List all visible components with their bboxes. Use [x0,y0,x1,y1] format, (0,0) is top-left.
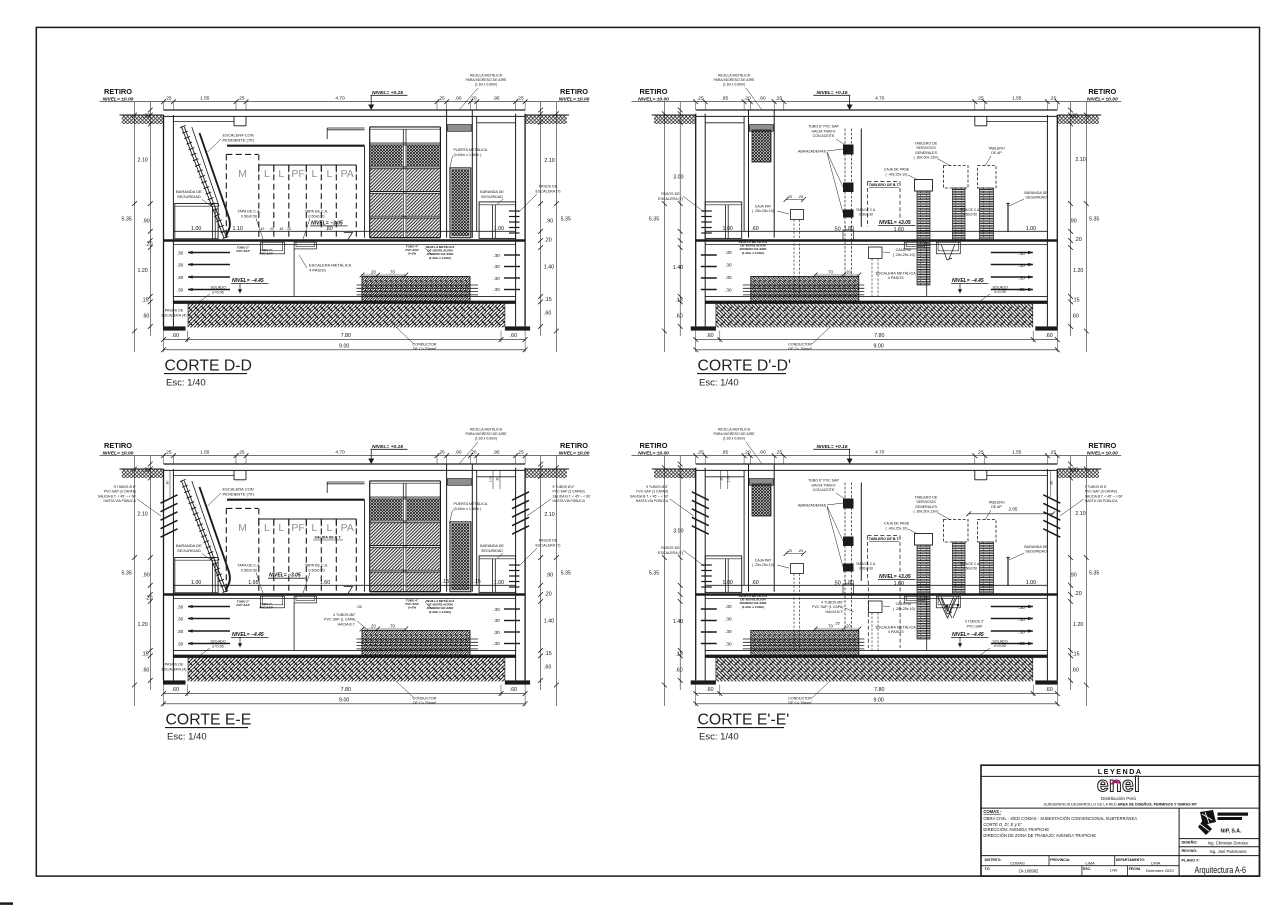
svg-text:1.20: 1.20 [1073,268,1083,274]
svg-text:SALIDA B.T. < 45' ~ < 60': SALIDA B.T. < 45' ~ < 60' [630,494,668,498]
svg-text:PVC SAP (1 CAPA): PVC SAP (1 CAPA) [324,618,355,622]
svg-text:.60: .60 [1071,667,1078,673]
svg-text:Esc: 1/40: Esc: 1/40 [166,377,206,388]
svg-text:(1.20m x 0.60m): (1.20m x 0.60m) [429,610,451,614]
svg-text:REJILLA METÁLICA: REJILLA METÁLICA [718,428,751,432]
svg-text:PF: PF [291,522,304,534]
svg-text:9 TUBOS Ø 6": 9 TUBOS Ø 6" [114,485,137,489]
svg-text:DIRECCIÓN: AVENIDA TRAPICHE: DIRECCIÓN: AVENIDA TRAPICHE [983,827,1049,832]
svg-text:NIVEL= −4.45: NIVEL= −4.45 [952,278,984,284]
svg-text:CONDUCTOR: CONDUCTOR [788,342,812,346]
svg-text:CONDUCTOR: CONDUCTOR [413,342,437,346]
svg-text:(1.20m x 0.60m): (1.20m x 0.60m) [742,251,764,255]
svg-text:.30: .30 [725,629,732,634]
svg-text:.20: .20 [370,623,376,628]
svg-text:.30: .30 [725,275,732,280]
svg-text:.15: .15 [1072,652,1079,658]
svg-text:L: L [264,522,270,534]
svg-text:.30: .30 [493,618,500,623]
svg-text:CAJA DE PASE: CAJA DE PASE [884,168,910,172]
svg-text:1.60: 1.60 [894,581,904,587]
svg-text:.30: .30 [493,264,500,269]
svg-text:SUBGERENCIA DESARROLLO DE LA: SUBGERENCIA DESARROLLO DE LA RED AREA DE… [1044,802,1198,807]
svg-text:.95: .95 [721,95,728,101]
svg-text:DE Cu 70mm²: DE Cu 70mm² [788,701,812,705]
svg-text:HACIA B.T.: HACIA B.T. [338,623,356,627]
svg-text:ESCALERA (7): ESCALERA (7) [535,190,560,194]
svg-text:1.20: 1.20 [137,268,147,274]
svg-text:(1.20m x 0.60m): (1.20m x 0.60m) [742,605,764,609]
svg-text:ESCALERA (7): ESCALERA (7) [658,551,683,555]
svg-text:FECHA: FECHA [1129,867,1141,871]
svg-text:.20: .20 [845,269,851,274]
svg-text:( .40x.25x.10): ( .40x.25x.10) [886,172,908,176]
svg-text:.60: .60 [496,477,500,482]
svg-text:3.00: 3.00 [673,529,683,535]
svg-text:PVC SAP: PVC SAP [259,252,272,256]
svg-text:9 TUBOS Ø 6": 9 TUBOS Ø 6" [1085,485,1108,489]
svg-text:SEGURIDAD: SEGURIDAD [481,549,503,553]
svg-text:.30: .30 [1018,263,1025,268]
svg-text:.20: .20 [145,242,152,248]
svg-text:PASOS DE: PASOS DE [539,185,558,189]
svg-text:.20: .20 [143,468,150,474]
svg-text:BARANDA DE: BARANDA DE [480,190,504,194]
svg-text:.20: .20 [744,95,751,101]
svg-text:L: L [326,522,332,534]
svg-text:1/40: 1/40 [1110,867,1119,872]
svg-text:REVISÓ:: REVISÓ: [1182,848,1198,853]
svg-text:4.70: 4.70 [335,95,345,101]
svg-text:(1.60 x 0.60m): (1.60 x 0.60m) [723,83,746,87]
svg-text:.60: .60 [751,226,758,232]
svg-text:.15: .15 [675,298,682,304]
svg-text:ESCALERA (4): ESCALERA (4) [161,668,186,672]
svg-text:.45: .45 [279,227,284,231]
svg-text:.30: .30 [1018,641,1025,646]
svg-text:.20: .20 [744,449,751,455]
svg-text:TABLERO DE B.T.: TABLERO DE B.T. [869,183,900,187]
svg-text:ABRAZADERAS: ABRAZADERAS [798,150,827,154]
svg-text:ESCALERA METÁLICA: ESCALERA METÁLICA [876,271,917,275]
svg-text:.20: .20 [1074,591,1081,597]
svg-text:SEGURIDAD: SEGURIDAD [1025,550,1047,554]
svg-text:5.35: 5.35 [649,217,659,223]
svg-text:TABLERO DE: TABLERO DE [915,142,938,146]
svg-text:T.D: T.D [985,867,991,871]
svg-text:5.35: 5.35 [121,571,131,577]
svg-text:( .25x.25x.10): ( .25x.25x.10) [893,253,915,257]
svg-text:9.00: 9.00 [873,343,883,349]
svg-text:.15: .15 [442,579,449,585]
svg-text:CORTE E'-E': CORTE E'-E' [698,711,790,728]
svg-text:HACIA TRAFO: HACIA TRAFO [812,129,836,133]
svg-text:HACIA TRAFO: HACIA TRAFO [812,483,836,487]
svg-text:1.10: 1.10 [233,226,243,232]
svg-text:.15: .15 [1072,298,1079,304]
svg-text:ESCALERA (7): ESCALERA (7) [658,197,683,201]
svg-text:SOLADO: SOLADO [992,640,1008,644]
svg-text:.25: .25 [356,604,362,609]
svg-text:.60: .60 [172,687,179,693]
svg-text:TAPA DE C.A.: TAPA DE C.A. [305,210,328,214]
svg-text:.60: .60 [1045,687,1052,693]
svg-text:PUERTA METÁLICA: PUERTA METÁLICA [454,502,488,506]
svg-text:.95: .95 [493,95,500,101]
svg-text:.90: .90 [142,219,149,225]
svg-text:OI-168982: OI-168982 [1019,868,1039,873]
svg-text:.60: .60 [1071,313,1078,319]
svg-text:L: L [311,168,317,180]
svg-text:.25: .25 [438,95,445,101]
svg-text:.60: .60 [719,477,723,482]
svg-text:Esc: 1/40: Esc: 1/40 [167,731,207,742]
svg-text:.30: .30 [1018,605,1025,610]
svg-text:.30: .30 [1018,617,1025,622]
svg-text:.15: .15 [544,651,551,657]
svg-text:ESC:: ESC: [1083,867,1091,871]
svg-text:SEGURIDAD: SEGURIDAD [177,194,201,199]
svg-text:5.35: 5.35 [561,217,571,223]
svg-text:.90: .90 [1069,573,1076,579]
svg-text:PVC SAP: PVC SAP [236,249,249,253]
svg-text:.30: .30 [493,641,500,646]
svg-text:HASTA VÍA PÚBLICA: HASTA VÍA PÚBLICA [1085,498,1118,503]
svg-text:.30: .30 [725,604,732,609]
svg-text:ESCALERA (4): ESCALERA (4) [161,314,186,318]
svg-text:(1.20m x 0.60m): (1.20m x 0.60m) [429,256,451,260]
svg-text:1.00: 1.00 [494,226,504,232]
svg-text:SALIDA B.T. < 45' ~ < 60': SALIDA B.T. < 45' ~ < 60' [1085,494,1123,498]
svg-text:PASOS DE: PASOS DE [539,539,558,543]
svg-text:.20: .20 [787,549,792,553]
svg-text:.30: .30 [725,641,732,646]
svg-text:PASOS DE: PASOS DE [661,192,680,196]
svg-text:.30: .30 [725,616,732,621]
svg-text:.60: .60 [706,687,713,693]
svg-text:LIMA: LIMA [1151,861,1161,866]
svg-text:.30: .30 [725,262,732,267]
svg-text:SOLADO: SOLADO [210,286,226,290]
svg-text:.70: .70 [827,623,833,628]
svg-text:.15: .15 [675,652,682,658]
svg-text:SEGURIDAD: SEGURIDAD [177,548,201,553]
svg-text:.20: .20 [1071,468,1078,474]
svg-text:.60: .60 [455,449,462,455]
svg-text:PARA INGRESO DE AIRE: PARA INGRESO DE AIRE [714,78,756,82]
svg-text:REJILLA METÁLICA: REJILLA METÁLICA [470,428,503,432]
svg-text:0.50x0.70: 0.50x0.70 [308,569,324,573]
svg-text:Ing. Christian Doroteo: Ing. Christian Doroteo [1208,841,1249,846]
svg-text:NIVEL= −4.45: NIVEL= −4.45 [952,632,984,638]
svg-text:5.35: 5.35 [649,571,659,577]
svg-text:DEPARTAMENTO:: DEPARTAMENTO: [1116,858,1145,862]
svg-text:NIVEL= −3.05: NIVEL= −3.05 [879,220,911,226]
svg-text:PVC SAP: PVC SAP [236,603,249,607]
svg-text:Esc: 1/40: Esc: 1/40 [699,377,739,388]
svg-text:TAPA DE C.A.: TAPA DE C.A. [856,562,876,566]
svg-text:SALIDA B.T. < 45' ~ < 60': SALIDA B.T. < 45' ~ < 60' [98,494,136,498]
svg-text:.40: .40 [269,227,274,231]
svg-text:9.00: 9.00 [873,697,883,703]
svg-text:.30: .30 [1018,251,1025,256]
svg-text:TAPA DE C.A.: TAPA DE C.A. [856,208,876,212]
svg-text:4.70: 4.70 [875,95,885,101]
svg-text:CONDUCTOR: CONDUCTOR [413,696,437,700]
svg-text:.30: .30 [177,629,184,634]
svg-text:.80: .80 [1049,481,1053,486]
svg-text:NIVEL= ±0.00: NIVEL= ±0.00 [1087,451,1118,457]
svg-text:BARANDA DE: BARANDA DE [480,544,504,548]
svg-text:NIVEL= +0.15: NIVEL= +0.15 [372,90,403,96]
svg-text:ESCALERA (7): ESCALERA (7) [535,544,560,548]
svg-text:.30: .30 [493,607,500,612]
svg-text:PASOS DE: PASOS DE [165,309,184,313]
svg-text:HASTA VÍA PÚBLICA: HASTA VÍA PÚBLICA [103,498,136,503]
svg-text:1.80: 1.80 [844,226,854,232]
svg-text:2.10: 2.10 [137,512,147,518]
svg-text:DISTRITO:: DISTRITO: [985,858,1002,862]
svg-text:.90: .90 [142,573,149,579]
svg-text:CON ACEITE: CON ACEITE [813,134,835,138]
svg-text:TABLERO: TABLERO [988,501,1005,505]
svg-text:.60: .60 [675,667,682,673]
svg-text:Distribución Perú: Distribución Perú [1101,796,1136,801]
svg-text:CAJA PAT: CAJA PAT [896,248,913,252]
svg-text:PARA INGRESO DE AIRE: PARA INGRESO DE AIRE [466,78,508,82]
svg-text:.90: .90 [546,573,553,579]
svg-text:.60: .60 [706,333,713,339]
svg-text:1.00: 1.00 [191,580,201,586]
svg-text:L: L [311,522,317,534]
svg-text:.30: .30 [177,251,184,256]
svg-text:4.70: 4.70 [335,449,345,455]
svg-text:COMAS: COMAS [1010,861,1025,866]
svg-text:.25: .25 [697,449,704,455]
svg-text:L: L [264,168,270,180]
svg-text:S=2%: S=2% [408,252,416,256]
svg-text:RETIRO: RETIRO [560,87,588,96]
svg-text:7.80: 7.80 [874,687,884,693]
svg-text:.25: .25 [834,620,840,625]
svg-text:0.50x0.50: 0.50x0.50 [963,212,977,216]
svg-text:CORTE D, D', E y E': CORTE D, D', E y E' [983,822,1021,827]
svg-text:.30: .30 [493,276,500,281]
svg-text:PASOS DE: PASOS DE [661,546,680,550]
svg-text:Arquitectura A-6: Arquitectura A-6 [1195,865,1247,875]
svg-text:NIVEL= ±0.00: NIVEL= ±0.00 [103,97,134,103]
svg-text:1.00: 1.00 [723,226,733,232]
svg-text:0.50x0.50: 0.50x0.50 [241,569,257,573]
svg-text:.25: .25 [798,549,803,553]
svg-text:RETIRO: RETIRO [560,441,588,450]
svg-text:L: L [278,168,284,180]
svg-text:3 TUBOS 2": 3 TUBOS 2" [965,620,985,624]
svg-text:.15: .15 [141,652,148,658]
svg-text:.90: .90 [546,219,553,225]
svg-text:BARANDA DE: BARANDA DE [1024,191,1048,195]
svg-text:NIVEL= +0.15: NIVEL= +0.15 [817,90,848,96]
svg-text:.25: .25 [238,95,245,101]
svg-text:.25: .25 [977,95,984,101]
svg-text:.20: .20 [544,592,551,598]
svg-text:0.30x0.30: 0.30x0.30 [859,566,873,570]
svg-text:SOLADO: SOLADO [210,640,226,644]
svg-text:.15: .15 [286,227,291,231]
svg-text:DE AP: DE AP [991,151,1002,155]
svg-text:4 PASOS: 4 PASOS [888,630,904,634]
svg-text:PENDIENTE (70'): PENDIENTE (70') [223,138,256,143]
svg-text:( .25x.25x.10): ( .25x.25x.10) [893,607,915,611]
svg-text:.15: .15 [544,297,551,303]
svg-text:.30: .30 [493,630,500,635]
svg-text:.30: .30 [1018,630,1025,635]
svg-text:4 PASOS: 4 PASOS [888,276,904,280]
svg-text:e=0.05: e=0.05 [212,290,223,294]
svg-text:PVC-SAP (3 CAPAS): PVC-SAP (3 CAPAS) [104,490,136,494]
svg-text:.30: .30 [177,642,184,647]
svg-text:( .80x.50x.13m): ( .80x.50x.13m) [914,510,939,514]
svg-text:PVC-SAP: PVC-SAP [967,624,983,628]
svg-text:.60: .60 [172,333,179,339]
svg-text:PF: PF [291,168,304,180]
svg-text:3.00: 3.00 [673,175,683,181]
svg-text:ABRAZADERAS: ABRAZADERAS [798,504,827,508]
svg-text:CAJA PAT: CAJA PAT [755,558,772,562]
svg-text:.30: .30 [493,253,500,258]
svg-text:TAPA DE C.A.: TAPA DE C.A. [237,210,260,214]
svg-text:RETIRO: RETIRO [104,87,132,96]
svg-text:1.00: 1.00 [489,476,493,483]
svg-text:GENERALES: GENERALES [915,505,938,509]
svg-text:.30: .30 [725,287,732,292]
svg-text:SALIDA B.T. < 45' ~ < 60': SALIDA B.T. < 45' ~ < 60' [553,494,591,498]
svg-text:COMAS -: COMAS - [983,809,1002,814]
svg-text:PASOS DE: PASOS DE [165,663,184,667]
svg-text:TAPA DE C.A.: TAPA DE C.A. [305,564,328,568]
svg-text:0.30x0.30: 0.30x0.30 [859,212,873,216]
svg-text:SERVICIOS: SERVICIOS [916,146,936,150]
svg-text:CORTE D'-D': CORTE D'-D' [698,357,792,374]
svg-text:NIVEL= ±0.00: NIVEL= ±0.00 [638,451,669,457]
svg-text:HASTA VÍA PÚBLICA: HASTA VÍA PÚBLICA [636,498,669,503]
svg-text:.30: .30 [725,250,732,255]
svg-text:4.70: 4.70 [875,449,885,455]
svg-text:1.95: 1.95 [248,580,258,586]
svg-text:PENDIENTE (70'): PENDIENTE (70') [223,492,256,497]
svg-text:DE Cu 70mm²: DE Cu 70mm² [413,701,437,705]
svg-text:4 TUBOS Ø6": 4 TUBOS Ø6" [821,600,844,604]
svg-text:.25: .25 [775,95,782,101]
svg-text:1.00: 1.00 [1026,580,1036,586]
svg-text:TAPA DE C.A.: TAPA DE C.A. [960,208,980,212]
svg-text:.30: .30 [177,617,184,622]
svg-text:(1.60 x 0.60m): (1.60 x 0.60m) [475,437,498,441]
svg-text:.60: .60 [675,313,682,319]
svg-text:.90: .90 [1069,219,1076,225]
svg-text:.25: .25 [697,95,704,101]
svg-text:1.55: 1.55 [200,449,210,455]
svg-text:NIVEL= −3.05: NIVEL= −3.05 [879,574,911,580]
svg-text:(0.60m x 1.80m ): (0.60m x 1.80m ) [454,507,482,511]
svg-text:M: M [238,168,247,180]
svg-text:NIVEL= −4.45: NIVEL= −4.45 [232,632,264,638]
svg-text:1.20: 1.20 [137,622,147,628]
svg-text:.95: .95 [493,449,500,455]
svg-text:S=2%: S=2% [408,606,416,610]
svg-text:DISEÑO:: DISEÑO: [1182,839,1198,844]
svg-text:.25: .25 [775,449,782,455]
svg-text:1.55: 1.55 [1012,449,1022,455]
svg-text:.20: .20 [845,623,851,628]
svg-text:2.10: 2.10 [544,158,554,164]
svg-text:9 TUBOS Ø 6": 9 TUBOS Ø 6" [553,485,576,489]
svg-text:.60: .60 [544,665,551,671]
svg-text:.30: .30 [177,605,184,610]
svg-text:.20: .20 [787,195,792,199]
svg-text:.25: .25 [517,95,524,101]
svg-text:.30: .30 [493,287,500,292]
svg-text:.60: .60 [1045,333,1052,339]
svg-text:( .80x.50x.13m): ( .80x.50x.13m) [914,156,939,160]
svg-text:NIVEL= ±0.00: NIVEL= ±0.00 [1087,97,1118,103]
svg-text:.25: .25 [1049,95,1056,101]
svg-text:4 PASOS: 4 PASOS [309,268,326,273]
svg-text:.60: .60 [759,95,766,101]
svg-text:PUERTA METÁLICA: PUERTA METÁLICA [454,148,488,152]
svg-text:DE AP: DE AP [991,505,1002,509]
svg-text:.25: .25 [165,95,172,101]
svg-text:NIP, S.A.: NIP, S.A. [1221,829,1243,835]
svg-text:.70: .70 [827,269,833,274]
svg-text:.25: .25 [517,449,524,455]
svg-text:TUBO 6" PVC SAP: TUBO 6" PVC SAP [808,479,839,483]
svg-text:SALIDA DE B.T.: SALIDA DE B.T. [314,536,341,540]
svg-text:CON ACEITE: CON ACEITE [813,488,835,492]
svg-text:.70: .70 [389,269,395,274]
svg-text:NIVEL= −3.05: NIVEL= −3.05 [269,573,301,579]
svg-text:2.10: 2.10 [137,158,147,164]
svg-text:.20: .20 [143,114,150,120]
svg-text:CORTE D-D: CORTE D-D [165,357,252,374]
svg-text:NIVEL= ±0.00: NIVEL= ±0.00 [559,451,590,457]
svg-text:SEGURIDAD: SEGURIDAD [1025,196,1047,200]
svg-text:.25: .25 [1049,449,1056,455]
svg-text:1.40: 1.40 [544,618,554,624]
svg-text:DE Cu 70mm²: DE Cu 70mm² [788,347,812,351]
svg-text:enel: enel [1097,774,1140,797]
svg-text:PLANO #:: PLANO #: [1182,857,1200,862]
svg-text:1.80: 1.80 [844,580,854,586]
svg-text:7.80: 7.80 [341,333,351,339]
svg-text:9.00: 9.00 [339,343,349,349]
svg-text:.50: .50 [833,226,840,232]
svg-text:Esc: 1/40: Esc: 1/40 [699,731,739,742]
svg-text:5.35: 5.35 [1089,571,1099,577]
svg-text:NIVEL= +0.15: NIVEL= +0.15 [817,444,848,450]
svg-text:1.55: 1.55 [1012,95,1022,101]
svg-text:0.50x0.50: 0.50x0.50 [241,215,257,219]
svg-text:1.00: 1.00 [723,580,733,586]
svg-text:.20: .20 [470,95,477,101]
svg-text:Ing. Joel Palomares: Ing. Joel Palomares [1209,849,1246,854]
svg-text:L: L [326,168,332,180]
svg-text:TABLERO: TABLERO [988,147,1005,151]
svg-text:.60: .60 [510,687,517,693]
svg-text:REJILLA METÁLICA: REJILLA METÁLICA [718,74,751,78]
svg-text:TUBO 6" PVC SAP: TUBO 6" PVC SAP [808,125,839,129]
svg-text:.30: .30 [177,288,184,293]
